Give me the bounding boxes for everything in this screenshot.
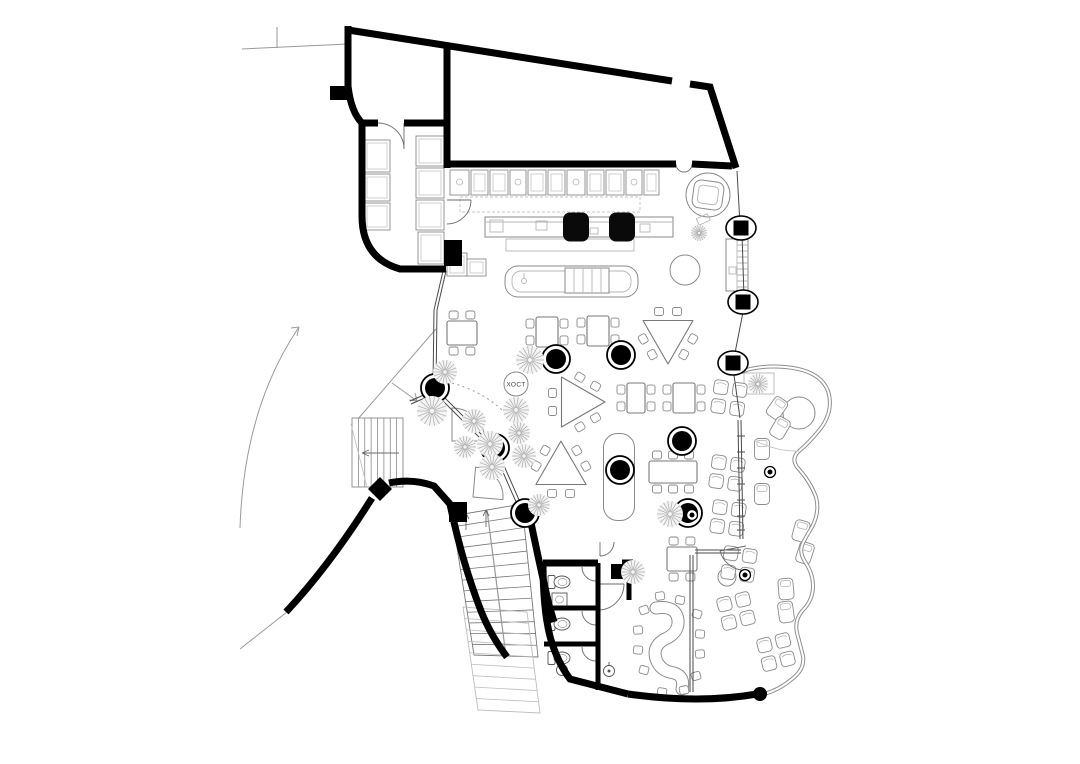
chair (549, 407, 557, 416)
chair (526, 336, 534, 345)
armchair (721, 614, 738, 631)
chair (633, 626, 643, 635)
dining-table-4 (617, 383, 655, 413)
chair (539, 445, 550, 457)
chair (526, 319, 534, 328)
floor-plan-page: ХОСТ (0, 0, 1080, 764)
service-stand (696, 214, 710, 225)
bar-equipment (565, 268, 609, 293)
chair (695, 650, 705, 659)
sink (604, 662, 615, 677)
chair (675, 595, 685, 604)
chair (646, 349, 657, 361)
plant (657, 501, 683, 527)
plant (477, 431, 503, 457)
door-swing (447, 200, 471, 224)
chair (663, 402, 671, 411)
chair (638, 605, 649, 616)
armchair (709, 518, 725, 534)
exterior-wall-right (690, 84, 736, 168)
chair (687, 333, 698, 345)
dining-table-6 (649, 451, 697, 493)
chair (663, 385, 671, 394)
chair (566, 489, 575, 497)
armchair (774, 632, 791, 649)
wall-sink (552, 593, 567, 606)
armchair (761, 655, 778, 672)
dining-table-4 (447, 311, 477, 355)
chair (574, 371, 586, 382)
armchair (732, 382, 748, 398)
corridor-door (600, 542, 614, 556)
plant (528, 494, 550, 516)
armchair-cluster (716, 591, 756, 631)
column-square (726, 216, 756, 240)
chair (590, 412, 602, 423)
plant (516, 346, 544, 374)
kitchen-unit (364, 174, 390, 201)
site-line (240, 612, 287, 649)
plant (417, 396, 447, 426)
kitchen-unit (416, 200, 444, 230)
kitchen-unit (416, 136, 444, 166)
lounge-chair (777, 601, 795, 624)
column-square (718, 351, 748, 375)
stair-west-wall (450, 504, 507, 657)
dining-table-4 (663, 383, 705, 413)
kitchen-unit (418, 232, 444, 264)
plant (454, 436, 476, 458)
chair (653, 485, 662, 493)
chair (637, 333, 648, 345)
chair (547, 489, 556, 497)
kitchen-unit (467, 259, 486, 276)
chair (466, 347, 475, 355)
stairs (352, 418, 540, 713)
south-wall (628, 694, 757, 699)
chair (669, 573, 678, 581)
armchair (728, 521, 744, 537)
armchair-cluster (709, 499, 746, 536)
armchair (711, 454, 727, 470)
armchair-cluster (720, 545, 757, 582)
kitchen-unit (510, 170, 526, 195)
property-line (242, 44, 348, 49)
armchair (716, 596, 733, 613)
chair (685, 485, 694, 493)
chair (647, 385, 655, 394)
host-station-label: ХОСТ (506, 382, 525, 389)
armchair (731, 502, 747, 518)
small-column (765, 467, 776, 478)
chair (697, 402, 705, 411)
kitchen-unit (416, 168, 444, 198)
kitchen-unit (644, 170, 659, 195)
lounge-chair (778, 578, 795, 600)
chair (580, 460, 591, 472)
stall-doors (582, 567, 596, 661)
s-booth (655, 608, 683, 690)
wall-opening (676, 164, 692, 172)
chair (678, 349, 689, 361)
chair (655, 308, 664, 316)
column (606, 456, 634, 484)
ramp-curve (240, 327, 299, 528)
kitchen-unit (490, 170, 508, 195)
bar-column (563, 213, 589, 242)
lounge-chair (755, 484, 770, 505)
toilet (548, 576, 570, 589)
chair (633, 646, 643, 655)
curved-facade (286, 498, 372, 612)
chair (617, 402, 625, 411)
plant (621, 560, 645, 584)
armchair-cluster (756, 632, 796, 672)
dining-table-4 (526, 317, 568, 347)
chair (577, 318, 585, 327)
column-square (728, 290, 758, 314)
facade-wall (389, 481, 450, 504)
chair (655, 591, 665, 600)
chair (549, 389, 557, 398)
kitchen-unit (606, 170, 624, 195)
chair (686, 537, 695, 545)
small-column (687, 510, 698, 521)
plant (433, 360, 457, 384)
column (607, 341, 635, 369)
armchair (712, 499, 728, 515)
chair (466, 311, 475, 319)
chair (449, 311, 458, 319)
triangle-table (637, 308, 698, 365)
armchair (739, 609, 756, 626)
chair (560, 319, 568, 328)
chair (571, 445, 582, 457)
chair (669, 537, 678, 545)
armchair-cluster (708, 454, 745, 491)
chair (679, 685, 689, 694)
labels: ХОСТ (504, 372, 528, 396)
floor-plan-drawing: ХОСТ (0, 0, 1080, 764)
chair (673, 308, 682, 316)
curved-wall (348, 86, 362, 123)
small-column (740, 570, 751, 581)
wall-block (449, 502, 467, 522)
armchair-cluster (710, 379, 747, 416)
wc-door (598, 584, 624, 610)
armchair (734, 591, 751, 608)
chair (590, 380, 602, 391)
plant (748, 374, 768, 394)
dining-north-wall (447, 164, 732, 166)
bar-column (609, 213, 635, 242)
chair (669, 485, 678, 493)
chair (560, 336, 568, 345)
plant (508, 422, 530, 444)
kitchen-equipment (364, 136, 659, 276)
kitchen-unit (626, 170, 642, 195)
kitchen-unit (364, 203, 390, 230)
kitchen-unit (548, 170, 565, 195)
kitchen-unit (587, 170, 604, 195)
wall-end-post (753, 687, 767, 701)
armchair (742, 548, 758, 564)
plant (691, 225, 707, 241)
plant (503, 397, 529, 423)
chair (653, 451, 662, 459)
chair (691, 671, 702, 681)
plant (512, 444, 536, 468)
kitchen-unit (528, 170, 546, 195)
armchair (710, 398, 726, 414)
chair (617, 385, 625, 394)
column (542, 345, 570, 373)
kitchen-unit (567, 170, 585, 195)
extraction-hood (460, 197, 640, 212)
armchair (720, 564, 736, 580)
kitchen-unit (364, 140, 390, 172)
armchair (756, 637, 773, 654)
shaft (444, 240, 462, 266)
kitchen-unit (471, 170, 488, 195)
exterior-wall-top (348, 30, 672, 81)
chair (577, 335, 585, 344)
exterior-stairs (352, 418, 403, 487)
triangle-table (549, 371, 606, 432)
armchair (713, 379, 729, 395)
chair (574, 421, 586, 432)
wall-stub (330, 86, 348, 100)
armchair (708, 473, 724, 489)
chair (647, 402, 655, 411)
chair (449, 347, 458, 355)
armchair (729, 401, 745, 417)
armchair (730, 457, 746, 473)
chair (611, 318, 619, 327)
chair (695, 630, 705, 639)
chair (697, 385, 705, 394)
chair (639, 665, 650, 675)
plant (479, 454, 505, 480)
column (668, 427, 696, 455)
dining-table-4 (577, 316, 619, 346)
armchair (779, 650, 796, 667)
plant (462, 409, 486, 433)
kitchen-unit (450, 170, 469, 195)
round-table (670, 255, 700, 285)
ramp-direction-arrow (392, 383, 417, 401)
